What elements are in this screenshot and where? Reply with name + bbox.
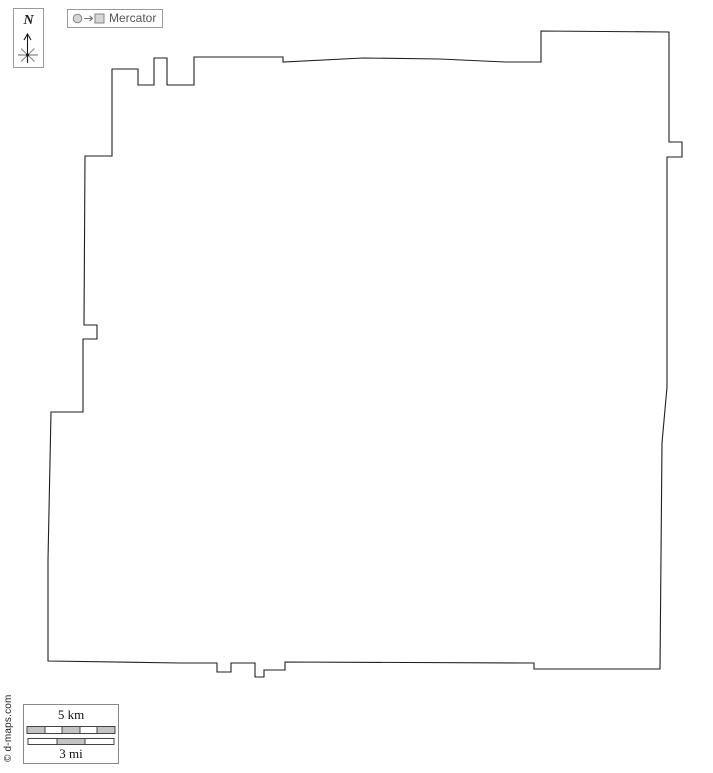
- scale-bar-segment: [29, 739, 57, 744]
- scale-mi-label: 3 mi: [24, 746, 118, 762]
- scale-bar-segment: [44, 727, 62, 733]
- scale-km-bar: [27, 726, 116, 734]
- map-page: N Mercator 5 km 3 mi © d-maps.com: [0, 0, 713, 773]
- scale-bar-segment: [28, 727, 45, 733]
- compass-rose: N: [13, 8, 44, 68]
- scale-bar-box: 5 km 3 mi: [23, 704, 119, 764]
- compass-north-icon: [14, 31, 43, 65]
- scale-km-label: 5 km: [24, 707, 118, 723]
- scale-bar-segment: [56, 739, 85, 744]
- projection-badge: Mercator: [67, 9, 163, 28]
- map-boundary-polygon: [48, 31, 682, 677]
- copyright-text: © d-maps.com: [3, 694, 14, 762]
- circle-to-square-icon: [72, 12, 105, 25]
- scale-bar-segment: [97, 727, 115, 733]
- compass-north-label: N: [14, 11, 43, 31]
- scale-bar-segment: [85, 739, 114, 744]
- scale-bar-segment: [62, 727, 80, 733]
- map-outline: [0, 0, 713, 773]
- projection-label: Mercator: [109, 10, 156, 27]
- scale-mi-bar: [28, 738, 115, 745]
- scale-bar-segment: [79, 727, 97, 733]
